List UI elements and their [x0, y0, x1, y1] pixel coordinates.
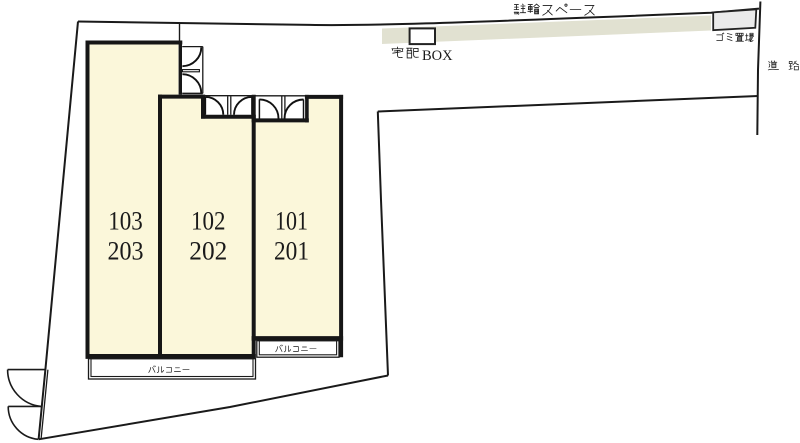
svg-text:101: 101	[275, 205, 308, 235]
svg-text:102: 102	[191, 205, 226, 235]
svg-text:202: 202	[189, 235, 227, 265]
svg-text:103: 103	[108, 205, 143, 235]
svg-text:201: 201	[274, 235, 309, 265]
svg-text:203: 203	[108, 235, 144, 265]
svg-text:BOX: BOX	[422, 48, 453, 64]
